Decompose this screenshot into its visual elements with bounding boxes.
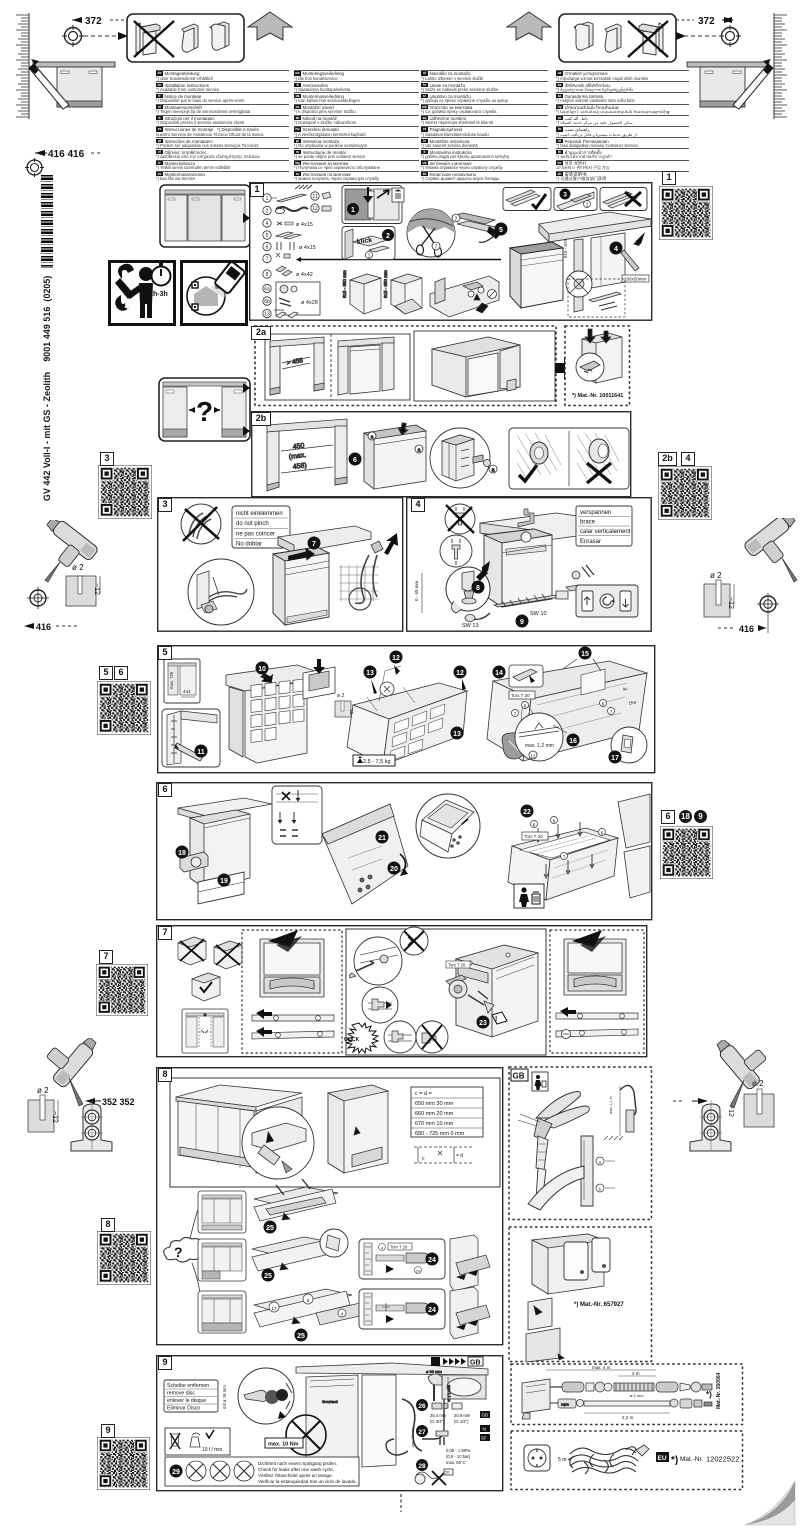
svg-text:20: 20 [390,866,398,873]
svg-text:Torx T 20: Torx T 20 [390,1245,408,1250]
svg-text:ø 4x28: ø 4x28 [301,300,318,306]
svg-text:5: 5 [499,227,503,234]
svg-text:12: 12 [392,655,400,662]
svg-text:ø 2 mm: ø 2 mm [630,1393,644,1398]
svg-text:21: 21 [378,835,386,842]
svg-text:11: 11 [312,194,317,200]
svg-text:5 m: 5 m [558,1457,566,1463]
svg-text:7: 7 [266,257,269,263]
svg-text:17: 17 [271,1306,277,1311]
svg-text:416 416: 416 416 [48,149,85,159]
svg-text:aqua: aqua [561,1403,569,1407]
svg-text:!: ! [495,1016,497,1023]
svg-text:13: 13 [453,731,461,738]
svg-text:SW 13: SW 13 [462,623,479,629]
svg-text:ø 2: ø 2 [710,571,722,580]
svg-text:18: 18 [178,850,186,857]
svg-text:2 m: 2 m [632,1371,640,1376]
svg-text:max 1,1 m: max 1,1 m [609,1096,613,1114]
svg-text:4: 4 [266,221,269,227]
svg-text:444: 444 [183,689,191,694]
svg-text:6a: 6a [264,287,270,293]
svg-text:28: 28 [418,1463,426,1470]
svg-text:26,4 mm: 26,4 mm [430,1413,447,1418]
svg-text:19: 19 [220,878,228,885]
svg-text:No doblar: No doblar [236,542,262,548]
svg-text:verspannen: verspannen [580,510,611,516]
svg-text:372: 372 [698,16,715,26]
svg-text:0 - 60 mm: 0 - 60 mm [414,580,419,601]
svg-text:680 - 725 mm 0 mm: 680 - 725 mm 0 mm [415,1131,465,1137]
svg-text:Gourmet: Gourmet [322,1399,338,1404]
svg-text:Torx T 20: Torx T 20 [511,693,530,698]
svg-text:−12: −12 [51,1111,58,1123]
svg-text:calar verticalement: calar verticalement [580,529,631,535]
svg-text:Eliminar Disco: Eliminar Disco [167,1406,200,1412]
svg-text:ø 4x15: ø 4x15 [299,245,316,251]
svg-text:1: 1 [368,254,371,260]
svg-text:~2h-3h: ~2h-3h [145,291,168,298]
svg-text:20,9 mm: 20,9 mm [454,1413,471,1418]
svg-text:Check for leaks after one wash: Check for leaks after one wash cycle. [258,1467,334,1472]
svg-text:450: 450 [292,443,305,451]
svg-text:352 352: 352 352 [102,1097,135,1107]
svg-text:*): *) [671,1455,678,1466]
svg-text:GB: GB [513,1072,525,1081]
svg-text:4: 4 [614,246,618,253]
svg-text:0,05 - 1 MPa: 0,05 - 1 MPa [446,1448,471,1453]
svg-text:1: 1 [266,196,269,202]
svg-text:Mat.-Nr.: Mat.-Nr. [680,1456,703,1463]
svg-text:(0,5 - 10 bar): (0,5 - 10 bar) [446,1454,471,1459]
svg-text:16: 16 [569,738,577,745]
svg-text:remove disc: remove disc [167,1391,195,1397]
svg-text:100x50mm: 100x50mm [624,277,647,282]
svg-text:12: 12 [349,709,354,715]
svg-text:7: 7 [435,245,438,251]
svg-text:nicht einklemmen: nicht einklemmen [236,511,283,517]
svg-text:12022522: 12022522 [706,1455,739,1464]
svg-text:max. 60°C: max. 60°C [446,1460,466,1465]
svg-text:Verificar la estanquiedad tras: Verificar la estanquiedad tras un ciclo … [258,1479,357,1484]
svg-text:50: 50 [445,1471,449,1475]
svg-text:SW 10: SW 10 [530,611,547,617]
svg-text:1: 1 [351,207,355,214]
svg-text:26: 26 [418,1403,426,1410]
svg-text:22: 22 [523,809,531,816]
svg-text:*) Mat.-Nr. 10011641: *) Mat.-Nr. 10011641 [572,393,623,399]
svg-text:(G 1/2"): (G 1/2") [454,1419,469,1424]
svg-text:−12: −12 [93,583,100,595]
svg-text:max 1,1 m: max 1,1 m [447,1385,451,1402]
svg-text:12: 12 [312,206,318,212]
svg-text:3: 3 [563,192,567,199]
svg-text:do not pinch: do not pinch [236,521,269,527]
svg-text:9: 9 [520,619,524,626]
svg-text:mit ø 18 mm: mit ø 18 mm [222,1385,227,1409]
svg-text:−12: −12 [727,597,734,609]
svg-text:ø 2: ø 2 [752,1079,764,1088]
svg-text:enlever le disque: enlever le disque [167,1398,206,1404]
svg-text:8: 8 [266,272,269,278]
svg-text:2,2 m: 2,2 m [622,1415,634,1420]
svg-text:*) Mat.-Nr. 657927: *) Mat.-Nr. 657927 [574,1302,624,1308]
svg-text:SF: SF [481,1436,487,1441]
svg-text:416: 416 [36,622,51,632]
svg-text:Dichtheit nach einem Spülgang: Dichtheit nach einem Spülgang prüfen. [258,1461,337,1466]
svg-text:*): *) [706,1390,712,1399]
svg-text:815 - 850 mm: 815 - 850 mm [383,270,388,298]
svg-text:815 - 850 mm: 815 - 850 mm [342,270,347,298]
svg-text:17: 17 [611,755,619,762]
svg-text:Mat.-Nr. 350564: Mat.-Nr. 350564 [716,1372,722,1409]
svg-text:11: 11 [197,749,205,756]
svg-text:−12: −12 [727,1105,734,1117]
svg-text:12: 12 [530,754,536,759]
svg-text:= d: = d [456,1153,463,1159]
svg-text:15: 15 [581,651,589,658]
svg-text:ø 4x42: ø 4x42 [296,272,313,278]
svg-text:6: 6 [353,457,357,464]
svg-text:8: 8 [476,585,480,592]
svg-text:10: 10 [416,1269,421,1274]
svg-text:max. 1,2 mm: max. 1,2 mm [525,743,554,749]
svg-text:ø 4x15: ø 4x15 [296,222,313,228]
svg-text:Vérifiez l'étanchéité après un: Vérifiez l'étanchéité après un lavage. [258,1473,333,1478]
svg-text:25: 25 [266,1225,274,1232]
svg-text:12: 12 [456,670,464,677]
svg-text:max. 4 m: max. 4 m [592,1365,611,1370]
svg-text:GB: GB [482,1413,489,1418]
svg-text:25: 25 [297,1333,305,1340]
svg-text:a: a [418,448,421,454]
svg-text:Scheibe entfernen: Scheibe entfernen [167,1383,209,1389]
svg-text:ø 36 mm: ø 36 mm [426,1369,442,1374]
svg-text:Torx T 20: Torx T 20 [524,834,543,839]
svg-text:max. 10 Nm: max. 10 Nm [268,1442,299,1448]
svg-text:2,5 - 7,5 kg: 2,5 - 7,5 kg [363,759,391,765]
svg-text:416: 416 [739,624,754,634]
svg-text:670 mm 10 mm: 670 mm 10 mm [415,1121,454,1127]
svg-text:a: a [371,435,374,441]
svg-text:(G 3/4"): (G 3/4") [430,1419,445,1424]
svg-text:CLICK: CLICK [344,1037,360,1043]
svg-text:Enrasar: Enrasar [580,539,601,545]
svg-text:372: 372 [85,16,102,26]
svg-text:24: 24 [428,1307,436,1314]
svg-text:1: 1 [586,203,589,209]
svg-text:13: 13 [264,312,270,318]
svg-text:23: 23 [479,1020,487,1027]
svg-text:29: 29 [172,1469,180,1476]
svg-text:N: N [483,1427,486,1432]
svg-text:7: 7 [312,541,316,548]
svg-text:ne pas coincer: ne pas coincer [236,532,275,538]
svg-text:EU: EU [658,1455,667,1462]
svg-text:brace: brace [580,520,596,526]
svg-text:?: ? [174,1244,183,1260]
svg-text:27: 27 [418,1429,426,1436]
svg-text:2: 2 [386,233,390,240]
svg-text:10: 10 [258,666,266,673]
svg-text:14: 14 [495,670,503,677]
svg-text:?: ? [196,396,213,427]
svg-text:24: 24 [428,1257,436,1264]
svg-text:ø 2: ø 2 [337,693,344,699]
svg-text:6b: 6b [264,299,270,305]
svg-text:ø 2: ø 2 [72,563,84,572]
svg-text:6: 6 [266,245,269,251]
svg-text:660 mm 20 mm: 660 mm 20 mm [415,1111,454,1117]
svg-text:a: a [492,468,495,474]
svg-text:2: 2 [266,209,269,215]
svg-text:815 - 875: 815 - 875 [563,238,568,258]
svg-text:ø 2: ø 2 [37,1086,49,1095]
svg-text:min. 10 mm: min. 10 mm [411,1427,415,1447]
svg-text:2: 2 [455,217,458,223]
svg-text:Torx T 20: Torx T 20 [448,963,466,968]
svg-text:10 l / min: 10 l / min [202,1447,223,1453]
svg-text:GB: GB [470,1360,481,1367]
svg-text:5: 5 [266,233,269,239]
svg-text:max. 725: max. 725 [169,671,174,689]
svg-text:25: 25 [264,1273,272,1280]
svg-text:650 mm 30 mm: 650 mm 30 mm [415,1101,454,1107]
svg-text:13: 13 [366,670,374,677]
svg-text:c = d =: c = d = [415,1091,432,1097]
